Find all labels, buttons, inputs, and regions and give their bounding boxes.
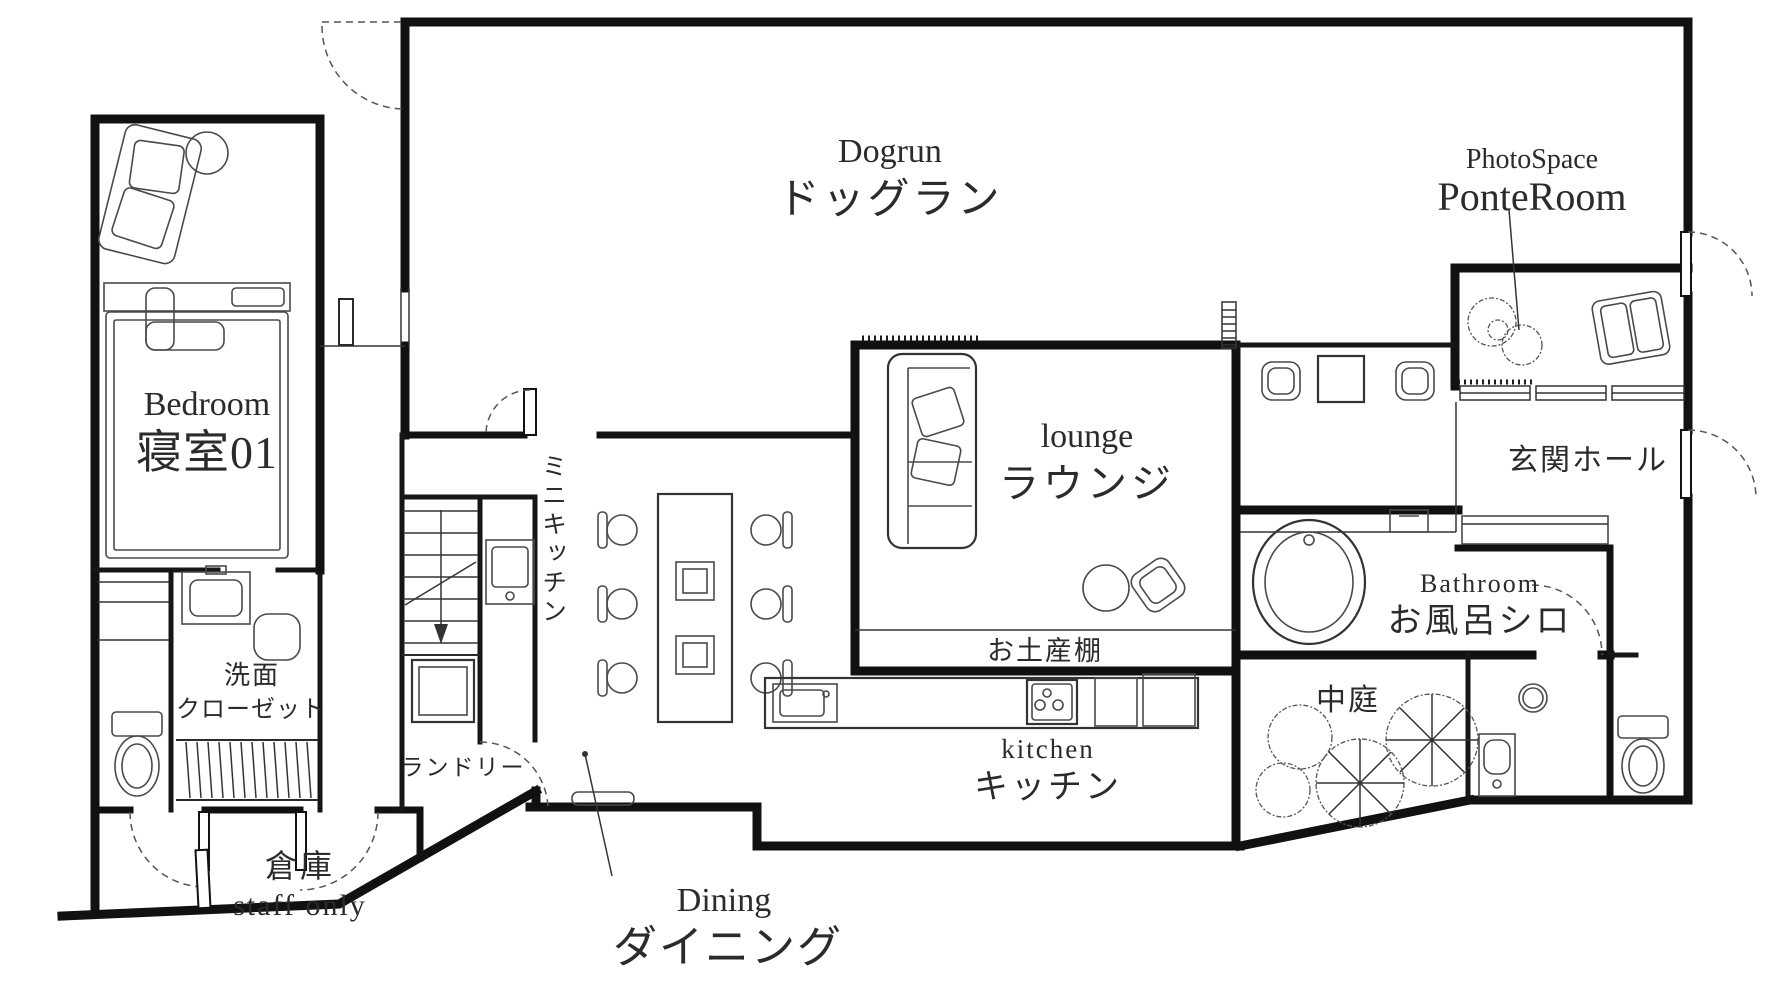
label-kitchen-ja: キッチン [974, 769, 1122, 806]
chair-seat [751, 515, 781, 545]
wall-segment [1240, 800, 1470, 846]
tree-branches [1316, 739, 1404, 827]
bath-stool [254, 614, 300, 660]
chair-back [598, 660, 607, 696]
window-ticks [1222, 310, 1236, 345]
laundry-basket-inner [1523, 688, 1543, 708]
ponteroom-furniture [1468, 210, 1671, 365]
toilet-bowl-inner [1629, 746, 1657, 786]
label-bedroom-ja: 寝室01 [136, 427, 278, 478]
sofa-cushion [1600, 302, 1635, 358]
lounge-sofa-frame [908, 368, 972, 544]
toilet-left [112, 712, 162, 796]
stove-burner [1035, 700, 1045, 710]
chair-back [783, 512, 792, 548]
washer-inner [419, 667, 467, 715]
entrance-stool-inner [1268, 368, 1294, 394]
chair-seat [607, 515, 637, 545]
label-washroom-line1: 洗面 [224, 661, 280, 690]
label-washroom-line2: クローゼット [176, 696, 326, 723]
floor-plan-drawing: Dogrun ドッグラン PhotoSpace PonteRoom Bedroo… [0, 0, 1770, 1000]
bed-hook-shape [146, 322, 224, 350]
vanity-faucet [1493, 780, 1501, 788]
label-lounge-ja: ラウンジ [999, 461, 1175, 506]
door-leaf [524, 389, 536, 435]
door-arc [1688, 232, 1752, 296]
floor-plan-page: Dogrun ドッグラン PhotoSpace PonteRoom Bedroo… [0, 0, 1770, 1000]
label-dining-en: Dining [677, 882, 771, 919]
dining-table [658, 494, 732, 722]
lounge-chair [1127, 554, 1188, 615]
sofa-cushion [1629, 297, 1664, 353]
bed-pillow [232, 288, 284, 306]
label-photospace-en: PhotoSpace [1466, 144, 1598, 175]
window-row [1460, 386, 1684, 400]
stove-inner [1032, 684, 1072, 720]
toilet-tank [1618, 716, 1668, 738]
ponteroom-sofa [1591, 290, 1671, 365]
dining-leader-line [585, 754, 612, 876]
mini-kitchen-faucet [506, 592, 514, 600]
door-leaf [1681, 430, 1691, 498]
table-pedestal-inner [683, 643, 707, 667]
stove-burner [1043, 689, 1051, 697]
chair-seat [751, 589, 781, 619]
label-storage-ja: 倉庫 [265, 848, 335, 884]
label-laundry: ランドリー [401, 755, 526, 780]
dining-chairs [598, 512, 792, 696]
stove-burner [1053, 700, 1063, 710]
chair-seat [607, 589, 637, 619]
door-leaf [1681, 232, 1691, 296]
door-leaf [195, 850, 210, 909]
label-mini-kitchen: ミニキッチン [539, 453, 566, 627]
mini-kitchen-unit [486, 540, 534, 604]
sofa-cushion [111, 186, 176, 250]
wall-post [339, 299, 353, 345]
kitchen-appliance [1095, 678, 1137, 726]
chair-back [598, 586, 607, 622]
lounge-round-table [1083, 565, 1129, 611]
chair-back [783, 586, 792, 622]
door-arc [130, 812, 205, 887]
bed-hook-shape [146, 288, 174, 350]
label-dogrun-ja: ドッグラン [777, 177, 1002, 223]
bathtub-drain [1304, 535, 1314, 545]
mini-kitchen-sink [492, 547, 528, 587]
chair-seat [607, 663, 637, 693]
hanger-items [186, 742, 311, 798]
kitchen-sink-bowl [780, 690, 824, 716]
label-bathroom-ja: お風呂シロ [1388, 603, 1573, 640]
stairs [403, 510, 478, 644]
changing-room-fixtures [1479, 684, 1547, 796]
table-pedestal [676, 562, 714, 600]
label-entrance-hall: 玄関ホール [1508, 444, 1668, 477]
kitchen-counter [765, 674, 1198, 728]
chair-back [598, 512, 607, 548]
toilet-bowl-inner [122, 744, 152, 788]
toilet-right [1618, 716, 1668, 793]
table-pedestal-inner [683, 569, 707, 593]
label-souvenir-shelf: お土産棚 [987, 636, 1103, 666]
washbasin-bowl [190, 580, 242, 616]
closet-hanger-rack [176, 740, 318, 800]
mini-kitchen-counter [486, 540, 534, 604]
sofa-cushion [129, 140, 185, 194]
lounge-sofa [888, 354, 976, 548]
label-courtyard: 中庭 [1316, 684, 1380, 717]
stove [1027, 680, 1077, 724]
bedroom-furniture [97, 123, 290, 558]
label-kitchen-en: kitchen [1001, 734, 1094, 764]
entrance-table [1318, 356, 1364, 402]
door-arc [1688, 430, 1756, 498]
chair-inner [1137, 564, 1179, 606]
label-photospace-name: PonteRoom [1438, 174, 1627, 219]
lounge-sofa-cushion [911, 386, 965, 438]
chair-body [1127, 554, 1188, 615]
label-storage-en: staff only [233, 889, 367, 922]
plant-inner [1488, 320, 1508, 340]
vanity-bowl [1484, 740, 1510, 774]
table-pedestal [676, 636, 714, 674]
laundry-washer [412, 660, 474, 722]
door-arc [322, 26, 405, 109]
counter-outline [765, 678, 1198, 728]
shoe-bench [1462, 516, 1608, 544]
washer-body [412, 660, 474, 722]
label-dogrun-en: Dogrun [838, 133, 942, 170]
bathtub-inner [1265, 532, 1353, 632]
label-bathroom-en: Bathroom [1420, 569, 1540, 598]
stair-arrow-head [434, 624, 448, 644]
toilet-tank [112, 712, 162, 736]
tree [1256, 763, 1310, 817]
bathtub [1253, 520, 1365, 644]
label-lounge-en: lounge [1041, 418, 1134, 455]
entrance-stool-inner [1402, 368, 1428, 394]
side-table [186, 132, 228, 174]
kitchen-appliance [1143, 674, 1195, 726]
label-dining-ja: ダイニング [613, 923, 843, 972]
label-bedroom-en: Bedroom [144, 386, 271, 423]
stove-outline [1027, 680, 1077, 724]
storage-diagonal-door [195, 850, 210, 909]
